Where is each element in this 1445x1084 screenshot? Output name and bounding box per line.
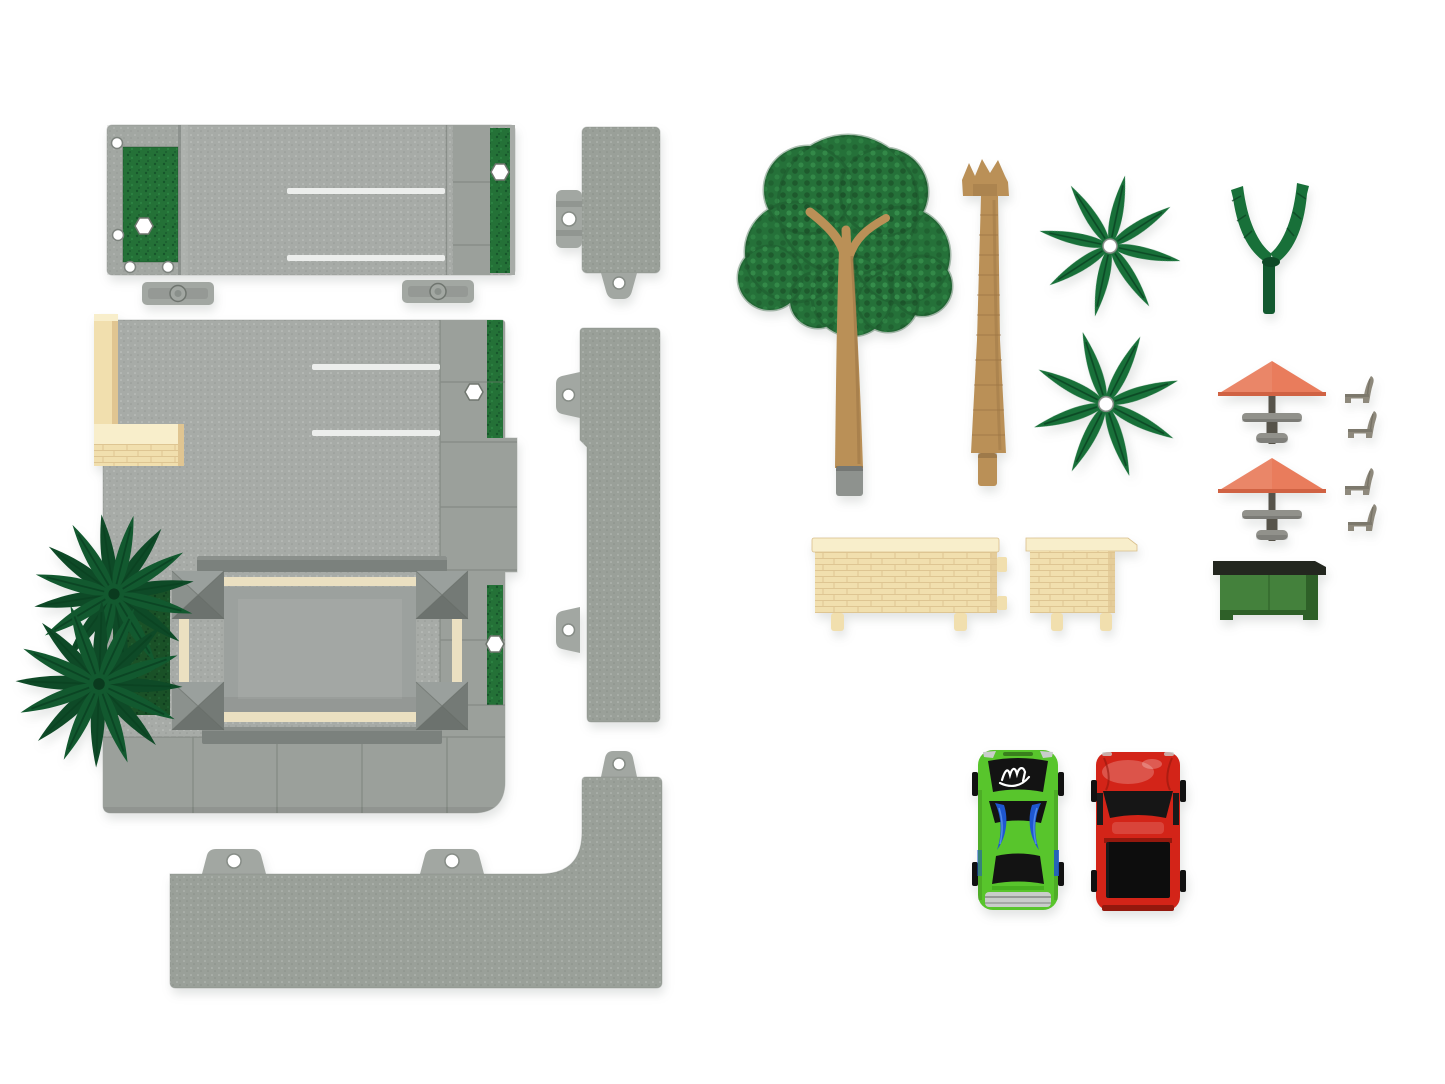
toy-car-green: [972, 750, 1064, 910]
rear-window: [992, 854, 1044, 885]
round-foliage-tree: [738, 135, 952, 496]
rear-bumper: [1102, 905, 1174, 911]
wheel: [1180, 780, 1186, 802]
cream-beam: [224, 712, 416, 722]
palm-trunk: [962, 159, 1009, 486]
patio-chair-2: [1348, 411, 1377, 438]
mounting-tab: [202, 849, 266, 874]
truck-bed: [1106, 842, 1170, 898]
canopy-post: [416, 682, 468, 730]
grass-strip: [487, 320, 503, 438]
wall-peg: [1051, 613, 1063, 631]
side-window: [1097, 793, 1103, 825]
diorama-parts-photo: [0, 0, 1445, 1084]
brick-wall-long: [812, 538, 1007, 631]
curb-end-piece: [556, 127, 660, 299]
mounting-tab: [601, 751, 637, 777]
patio-chair-3: [1345, 468, 1374, 495]
curb-long-piece: [556, 328, 660, 722]
wall-tab: [997, 557, 1007, 572]
toy-car-red: [1091, 752, 1186, 911]
grass-patch: [123, 147, 178, 262]
sidewalk-strip: [447, 125, 491, 275]
parking-lot-plate: [107, 125, 515, 305]
hood-black: [988, 758, 1048, 792]
umbrella-table-set-1: [1218, 361, 1326, 444]
wheel: [1058, 772, 1064, 796]
grass-strip: [490, 128, 510, 273]
wheel: [1091, 780, 1097, 802]
wall-peg: [1100, 613, 1112, 631]
planter-rim: [1213, 561, 1326, 575]
mounting-tab: [556, 607, 580, 653]
patio-chair-4: [1348, 504, 1377, 531]
palm-frond-star-1: [1025, 161, 1196, 332]
sprout-frond-right: [1271, 183, 1309, 264]
canopy-post: [172, 682, 224, 730]
side-clip: [556, 190, 582, 248]
product-photo: [0, 0, 1445, 1084]
umbrella-table-set-2: [1218, 458, 1326, 541]
side-window: [1173, 793, 1179, 825]
rear-bumper: [985, 892, 1051, 907]
wheel: [1180, 870, 1186, 892]
palm-peg: [978, 453, 997, 486]
canopy-post: [416, 571, 468, 619]
cream-beam: [179, 619, 189, 682]
main-base-plate: [0, 314, 517, 823]
wheel: [972, 772, 978, 796]
wall-tab: [997, 596, 1007, 610]
planter-bench: [1213, 561, 1326, 620]
palm-sprout: [1231, 183, 1309, 314]
wheel: [1091, 870, 1097, 892]
cream-beam: [224, 577, 416, 586]
mounting-clip: [142, 282, 214, 305]
mounting-clip: [402, 280, 474, 303]
palm-frond-star-2: [1011, 309, 1202, 500]
tree-peg: [836, 466, 863, 496]
mounting-tab: [556, 372, 580, 418]
windshield: [1103, 791, 1173, 818]
wall-peg: [954, 613, 967, 631]
sidewalk-band: [103, 737, 517, 813]
cream-beam: [452, 619, 462, 682]
patio-chair-1: [1345, 376, 1374, 403]
mounting-tab: [420, 849, 484, 874]
mounting-tab: [601, 273, 637, 299]
brick-wall-short: [1026, 538, 1137, 631]
wall-peg: [831, 613, 844, 631]
